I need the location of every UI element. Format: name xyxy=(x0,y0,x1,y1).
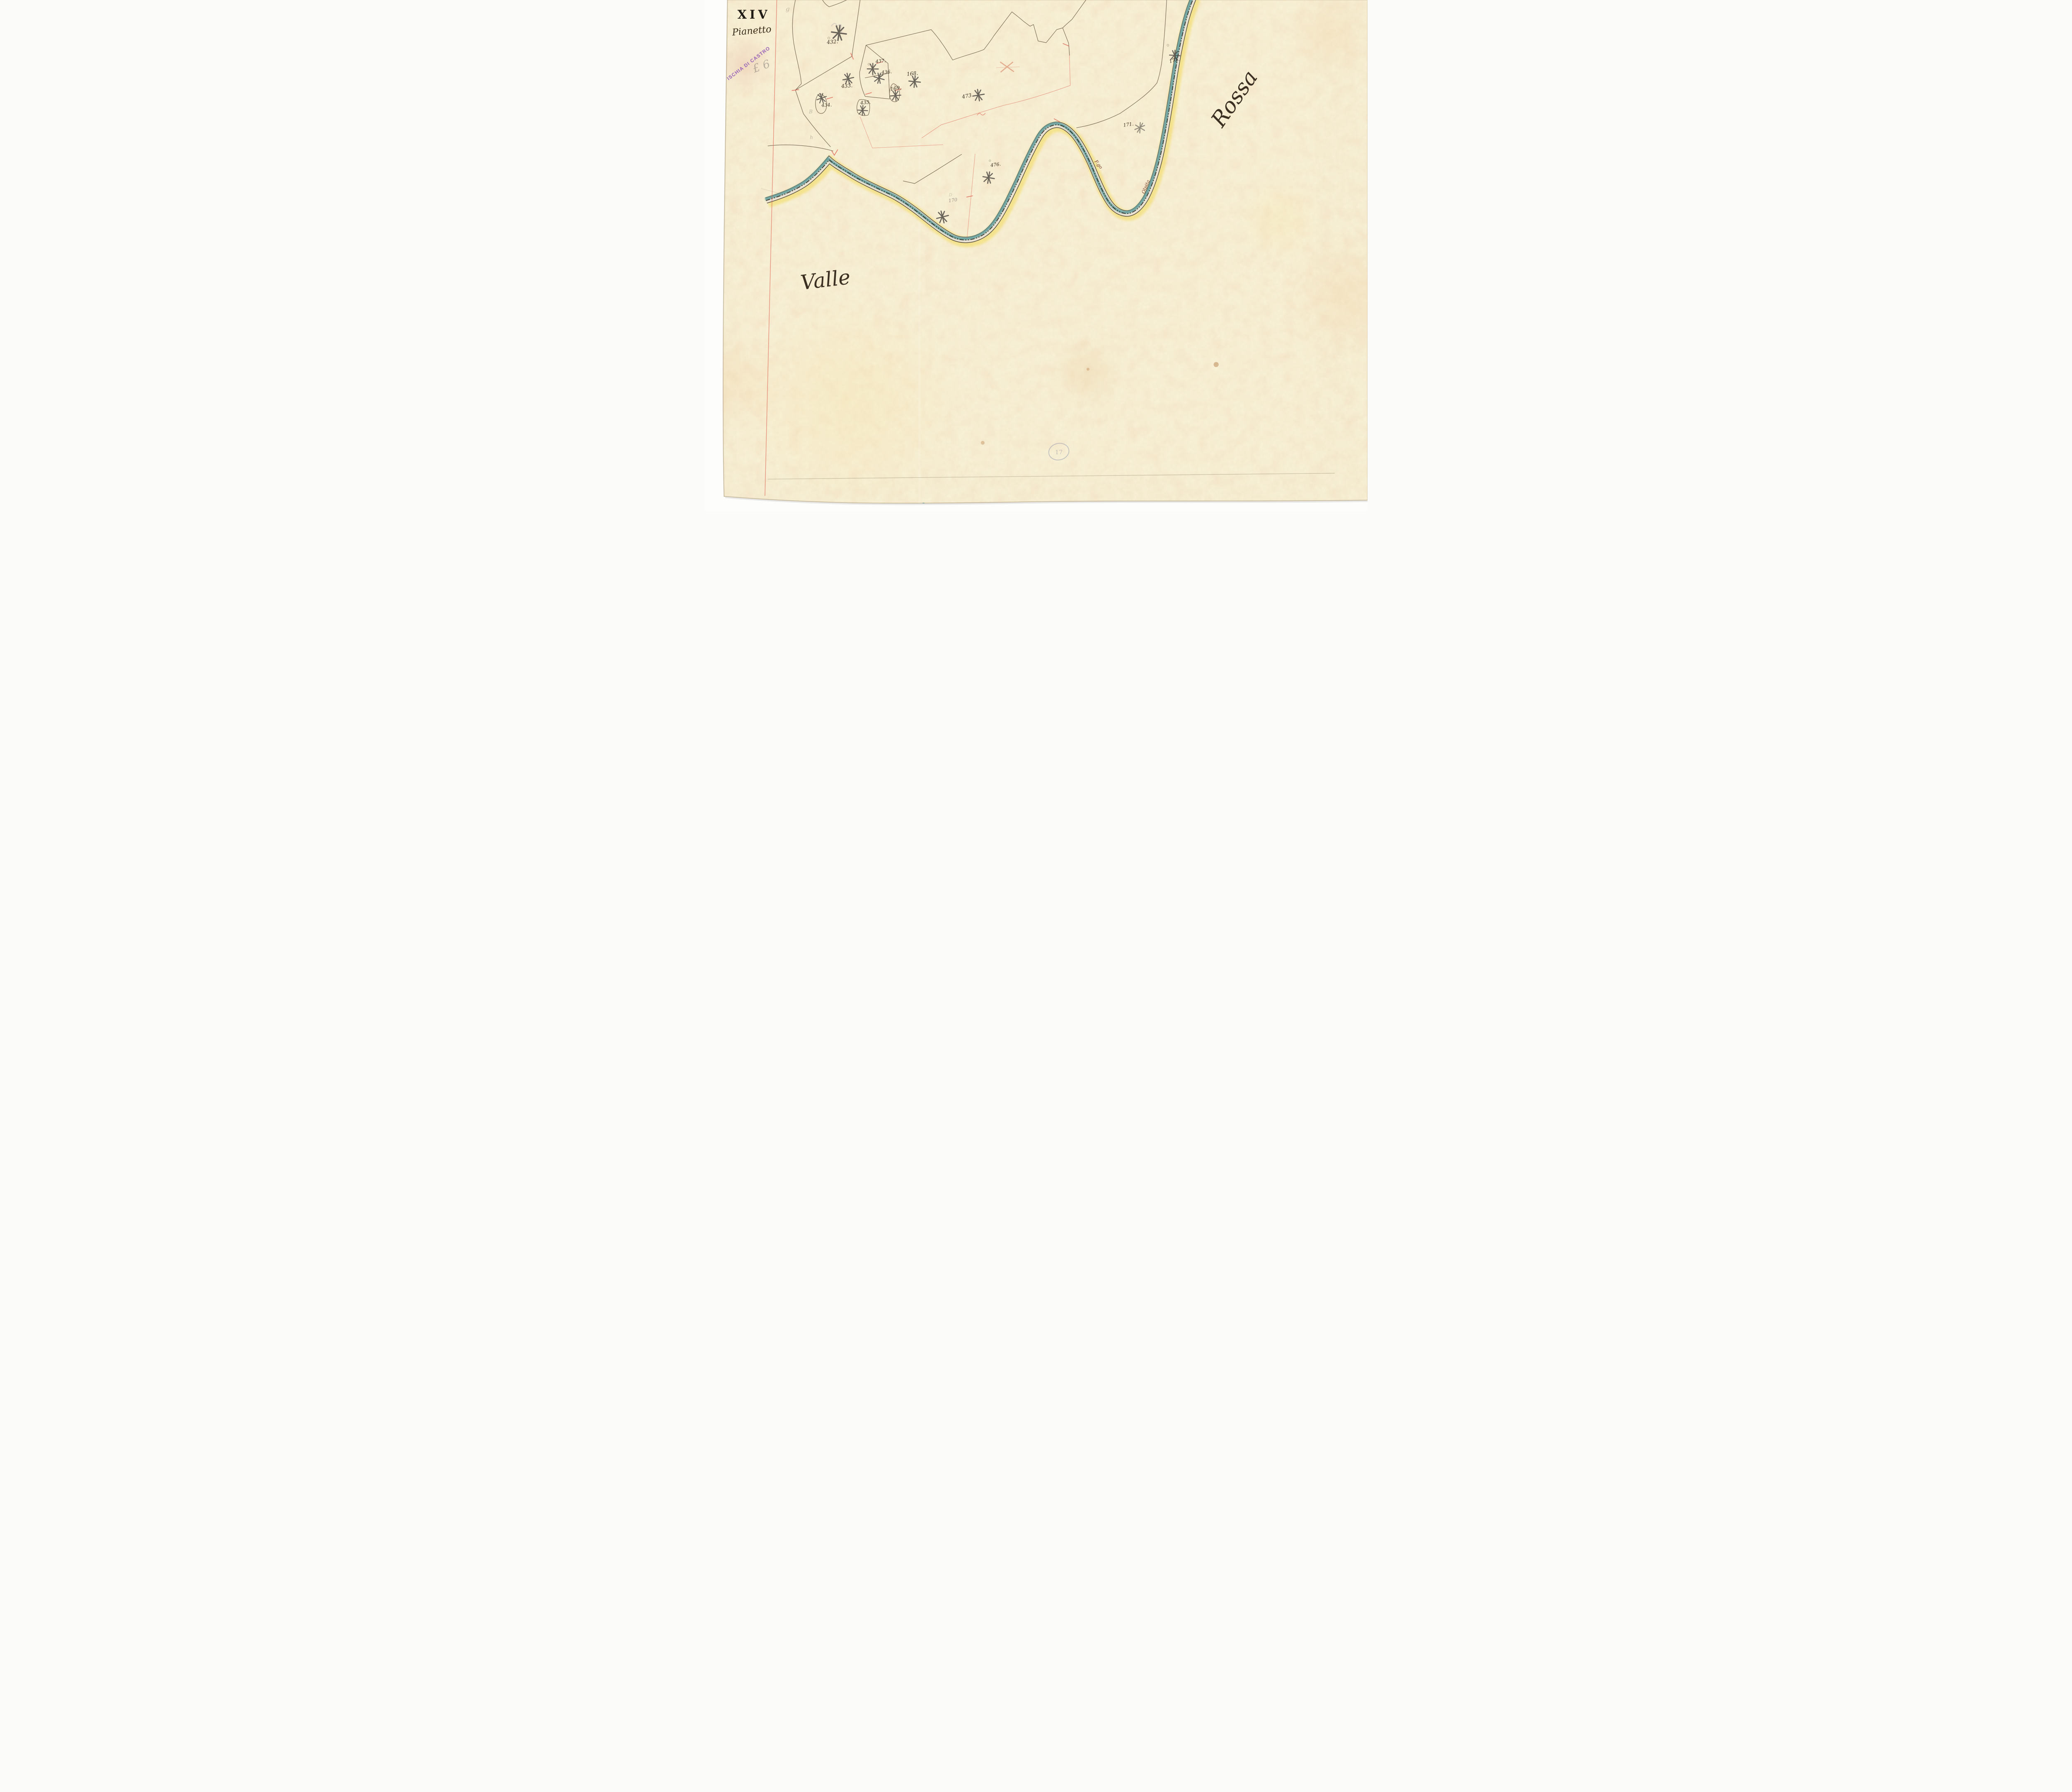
pencil-mark-b: B xyxy=(808,109,813,114)
parcel-label-436: 436. xyxy=(881,69,892,75)
scanned-map-page: 432. 433. 434. 435. 436. 437. 168. 169, … xyxy=(704,0,1368,511)
parcel-label-432: 432. xyxy=(826,39,838,45)
plate-number: XIV xyxy=(738,7,770,22)
parcel-label-434: 434. xyxy=(821,102,832,108)
parcel-label-437: 437. xyxy=(875,58,886,65)
pencil-mark-d: D xyxy=(949,193,952,197)
parcel-label-433: 433. xyxy=(841,82,853,89)
parcel-label-435: 435. xyxy=(860,99,871,106)
parcel-label-168: 168. xyxy=(906,70,918,77)
pencil-mark-g: g xyxy=(786,5,790,13)
pencil-mark-h: h xyxy=(810,135,813,140)
scan-stitch-artifact xyxy=(918,127,920,511)
embossed-stamp-text: 17 xyxy=(1055,449,1063,456)
cadastral-map: 432. 433. 434. 435. 436. 437. 168. 169, … xyxy=(704,0,1368,511)
